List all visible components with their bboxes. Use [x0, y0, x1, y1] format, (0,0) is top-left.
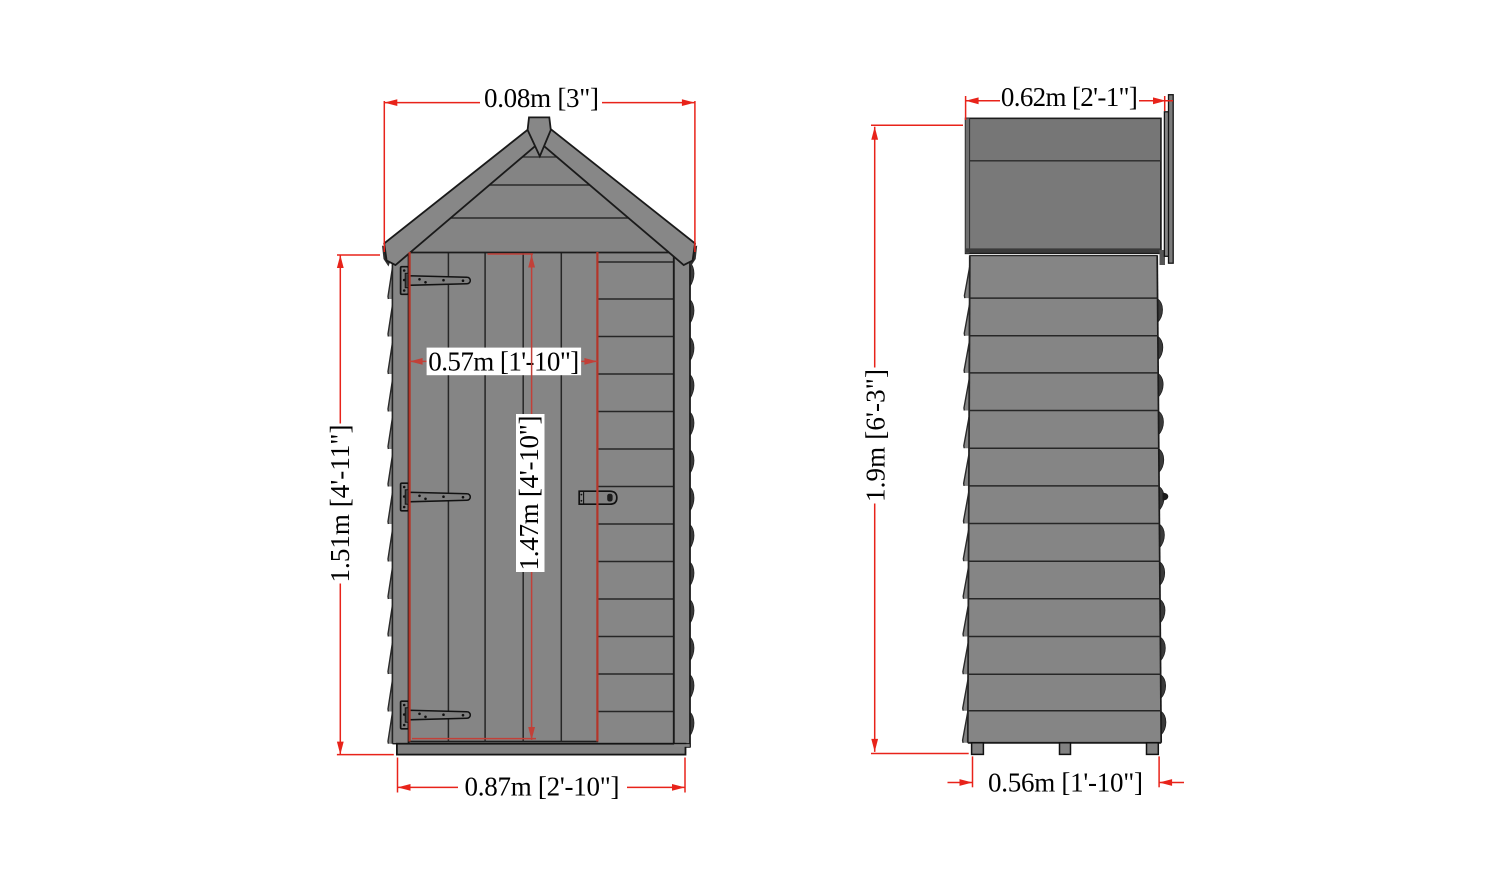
svg-text:0.57m [1'-10"]: 0.57m [1'-10"]	[428, 347, 579, 377]
svg-text:1.9m [6'-3"]: 1.9m [6'-3"]	[861, 369, 891, 502]
svg-text:0.08m [3"]: 0.08m [3"]	[484, 83, 599, 113]
svg-text:0.56m [1'-10"]: 0.56m [1'-10"]	[988, 768, 1143, 798]
svg-text:0.62m [2'-1"]: 0.62m [2'-1"]	[1001, 82, 1138, 112]
svg-text:1.47m [4'-10"]: 1.47m [4'-10"]	[514, 416, 544, 571]
svg-text:0.87m [2'-10"]: 0.87m [2'-10"]	[465, 772, 620, 802]
svg-text:1.51m [4'-11"]: 1.51m [4'-11"]	[325, 425, 355, 583]
